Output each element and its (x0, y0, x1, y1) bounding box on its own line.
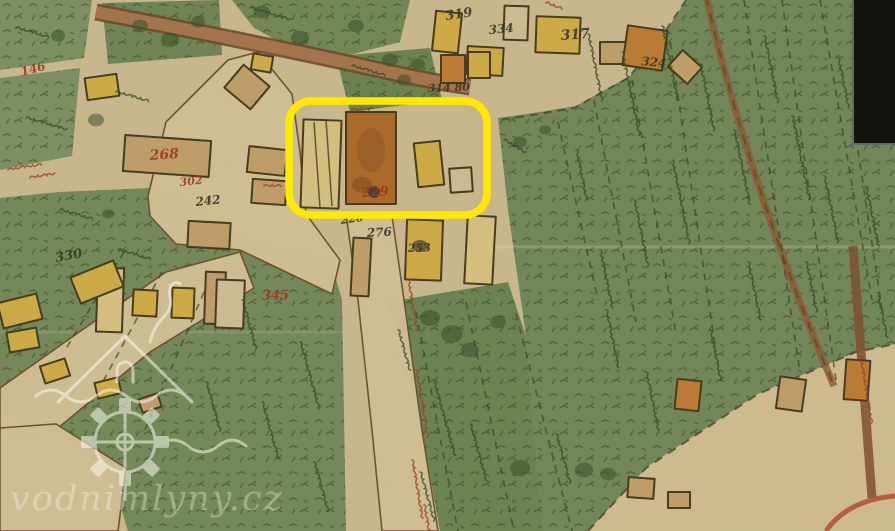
paper-grain (0, 0, 895, 531)
watermark-text: vodnimlyny.cz (10, 479, 284, 519)
map-viewport[interactable]: 146268302345229319334317324314 803302422… (0, 0, 895, 531)
map-sheet-void (853, 0, 895, 144)
historical-cadastral-map[interactable]: 146268302345229319334317324314 803302422… (0, 0, 895, 531)
